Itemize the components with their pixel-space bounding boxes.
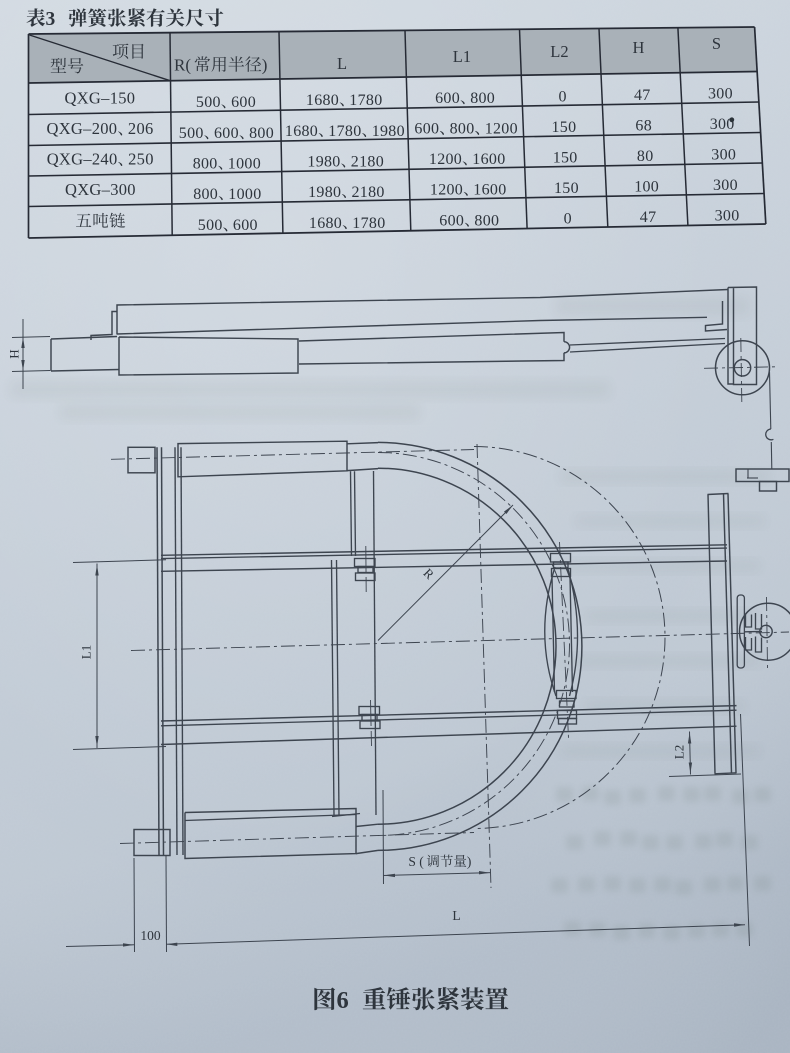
svg-text:150: 150 [554, 180, 579, 197]
svg-text:300: 300 [711, 147, 736, 164]
svg-text:1980: 1980 [372, 123, 405, 140]
svg-text:0: 0 [564, 211, 572, 228]
svg-text:L1: L1 [79, 645, 94, 659]
svg-text:0: 0 [559, 88, 567, 105]
svg-text:QXG–200: QXG–200 [47, 119, 118, 138]
svg-text:QXG–300: QXG–300 [65, 180, 136, 199]
svg-text:500: 500 [179, 125, 204, 142]
svg-text:100: 100 [634, 178, 659, 195]
svg-text:): ) [262, 56, 268, 75]
svg-text:): ) [467, 854, 472, 869]
svg-text:206: 206 [128, 119, 154, 138]
svg-text:1780: 1780 [352, 215, 385, 232]
svg-text:300: 300 [713, 177, 738, 194]
svg-text:500: 500 [196, 94, 221, 111]
svg-text:800: 800 [450, 121, 475, 138]
svg-text:47: 47 [634, 87, 651, 104]
svg-text:250: 250 [128, 150, 154, 169]
svg-text:L: L [337, 54, 347, 73]
svg-text:68: 68 [635, 118, 652, 135]
svg-text:1680: 1680 [306, 92, 339, 109]
svg-text:100: 100 [140, 928, 161, 943]
svg-text:L: L [452, 908, 460, 923]
svg-text:L2: L2 [550, 42, 568, 61]
svg-text:1200: 1200 [430, 182, 463, 199]
svg-text:1980: 1980 [307, 153, 340, 170]
svg-text:L2: L2 [672, 745, 687, 759]
svg-text:S (: S ( [408, 854, 424, 869]
svg-text:150: 150 [553, 149, 578, 166]
svg-text:800: 800 [249, 125, 274, 142]
svg-text:600: 600 [435, 90, 460, 107]
svg-text:1600: 1600 [472, 151, 505, 168]
svg-text:1200: 1200 [485, 121, 518, 138]
svg-text:QXG–240: QXG–240 [47, 150, 118, 169]
svg-text:800: 800 [470, 90, 495, 107]
svg-text:1000: 1000 [228, 156, 261, 173]
svg-text:80: 80 [637, 148, 654, 165]
svg-text:500: 500 [198, 217, 223, 234]
svg-text:S: S [712, 34, 721, 53]
svg-text:2180: 2180 [351, 153, 384, 170]
svg-text:47: 47 [640, 209, 657, 226]
svg-text:300: 300 [708, 86, 733, 103]
svg-text:R(: R( [174, 56, 191, 75]
svg-text:300: 300 [715, 208, 740, 225]
svg-text:600: 600 [439, 213, 464, 230]
svg-text:1980: 1980 [308, 184, 341, 201]
svg-text:1200: 1200 [429, 151, 462, 168]
svg-text:6: 6 [337, 987, 349, 1014]
svg-text:1600: 1600 [473, 182, 506, 199]
svg-text:150: 150 [552, 119, 577, 136]
svg-text:800: 800 [474, 213, 499, 230]
svg-text:1680: 1680 [285, 123, 318, 140]
svg-text:1780: 1780 [349, 92, 382, 109]
svg-text:600: 600 [214, 125, 239, 142]
svg-text:1000: 1000 [228, 186, 261, 203]
svg-text:800: 800 [193, 186, 218, 203]
svg-text:800: 800 [193, 156, 218, 173]
svg-text:1680: 1680 [309, 215, 342, 232]
svg-text:H: H [7, 349, 22, 358]
svg-text:600: 600 [414, 121, 439, 138]
svg-text:1780: 1780 [328, 123, 361, 140]
svg-text:600: 600 [233, 217, 258, 234]
svg-text:H: H [633, 38, 645, 57]
svg-text:L1: L1 [453, 47, 471, 66]
svg-text:2180: 2180 [352, 184, 385, 201]
svg-text:QXG–150: QXG–150 [65, 88, 136, 107]
svg-text:600: 600 [231, 94, 256, 111]
svg-text:3: 3 [46, 9, 56, 30]
